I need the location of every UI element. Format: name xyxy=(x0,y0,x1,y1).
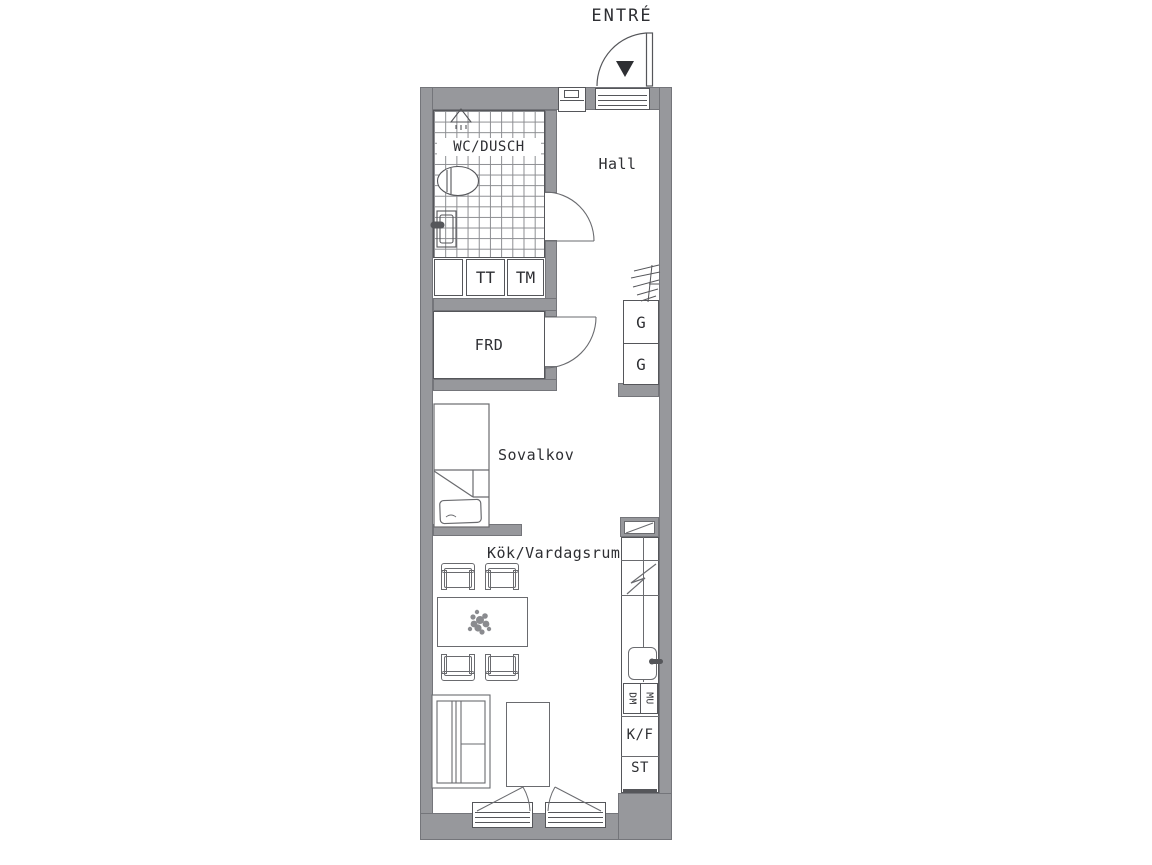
storage-door-swing xyxy=(545,317,596,368)
sofa-icon xyxy=(432,695,490,788)
washbasin-icon xyxy=(431,211,456,247)
entrance-door-swing xyxy=(597,33,653,86)
bathroom-door-swing xyxy=(545,192,594,241)
shower-icon xyxy=(451,109,471,130)
stove-zigzag-icon xyxy=(627,564,656,594)
entrance-label: ENTRÉ xyxy=(586,6,658,26)
coat-rail-icon xyxy=(631,265,660,302)
toilet-icon xyxy=(438,167,479,196)
bed-icon xyxy=(434,404,489,527)
entrance-direction-icon xyxy=(616,61,634,77)
floor-plan: WC/DUSCH TT TM FRD Hall G G Sovalkov Kök… xyxy=(0,0,1152,865)
plant-icon xyxy=(468,610,491,635)
plan-vector-overlay xyxy=(0,0,1152,865)
kitchen-tap-icon xyxy=(649,659,663,665)
cabinet-diagonal-line xyxy=(626,523,653,533)
balcony-door-swings xyxy=(477,787,601,811)
